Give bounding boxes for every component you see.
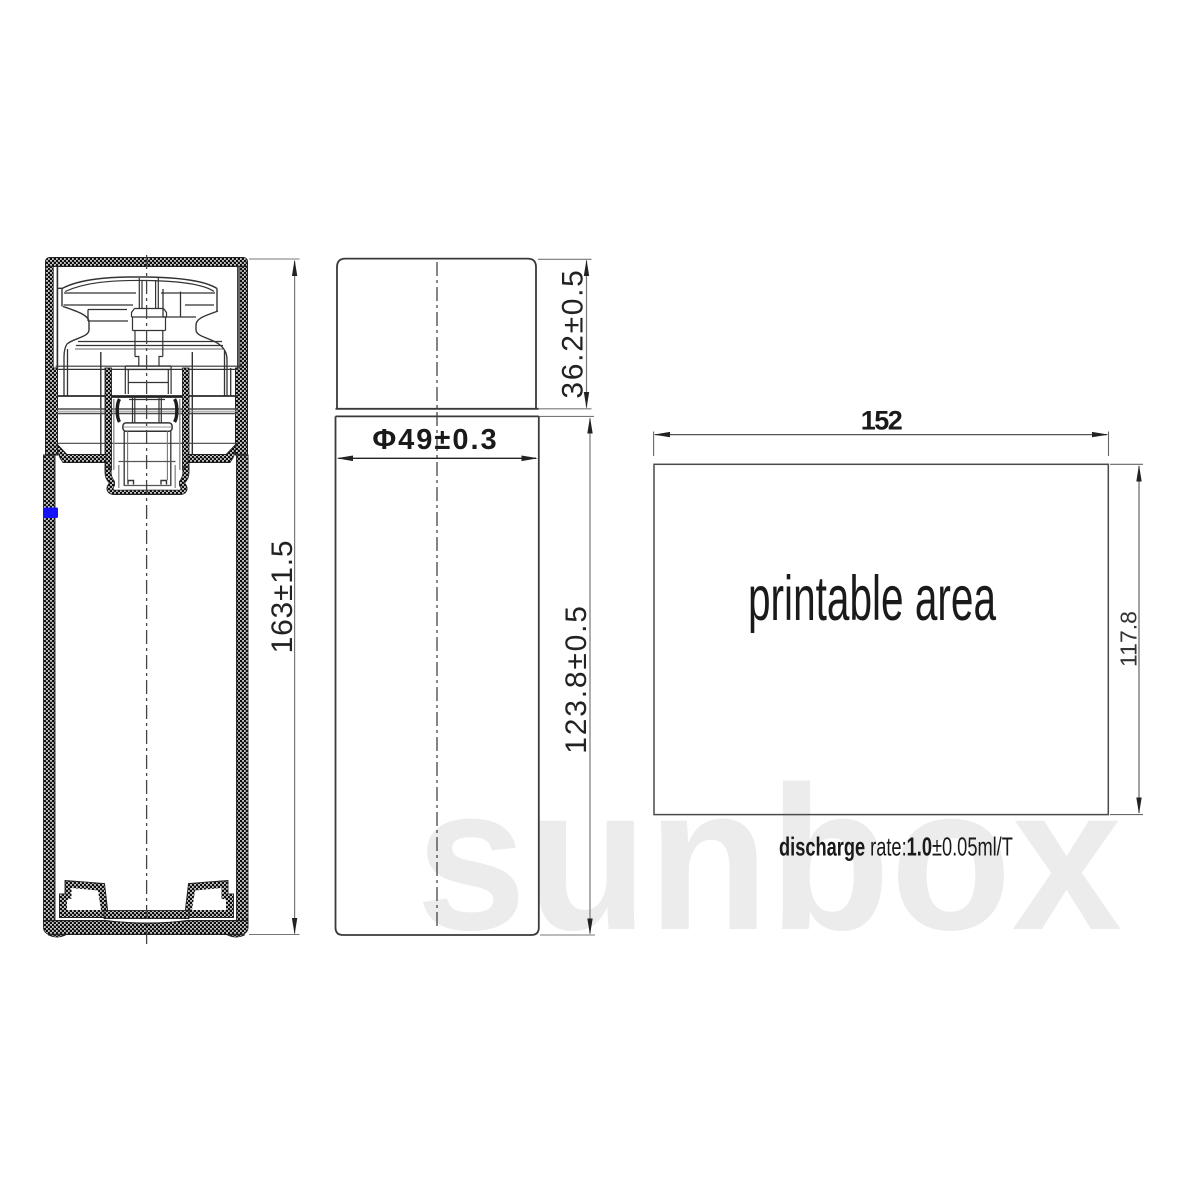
svg-text:Φ49±0.3: Φ49±0.3	[372, 424, 498, 456]
svg-text:163±1.5: 163±1.5	[266, 540, 299, 654]
svg-text:36.2±0.5: 36.2±0.5	[557, 268, 590, 398]
svg-text:123.8±0.5: 123.8±0.5	[560, 604, 593, 753]
svg-text:sunbox: sunbox	[416, 744, 1122, 973]
svg-text:discharge rate:1.0±0.05ml/T: discharge rate:1.0±0.05ml/T	[779, 832, 1013, 861]
svg-text:printable area: printable area	[748, 564, 997, 634]
svg-text:152: 152	[861, 406, 902, 436]
svg-text:117.8: 117.8	[1116, 611, 1142, 667]
